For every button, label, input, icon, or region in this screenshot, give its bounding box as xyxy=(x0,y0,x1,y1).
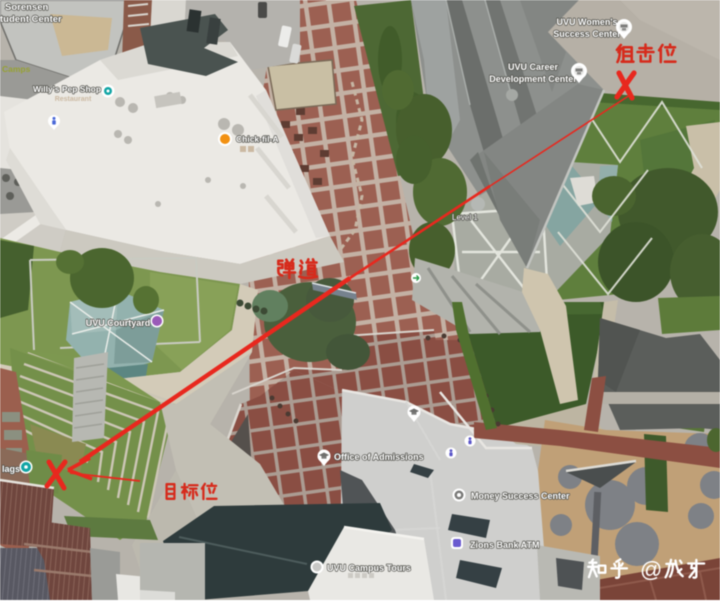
svg-text:UVU Courtyard: UVU Courtyard xyxy=(86,318,151,328)
svg-text:Chick-fil-A: Chick-fil-A xyxy=(236,134,279,144)
svg-text:Level 1: Level 1 xyxy=(452,213,478,222)
svg-text:UVU Career: UVU Career xyxy=(508,62,559,72)
svg-text:tudent Center: tudent Center xyxy=(0,14,62,25)
svg-text:Restaurant: Restaurant xyxy=(55,96,92,103)
svg-text:Camps: Camps xyxy=(2,64,31,74)
svg-text:UVU Campus Tours: UVU Campus Tours xyxy=(327,563,411,573)
svg-text:Sorensen: Sorensen xyxy=(5,2,48,13)
svg-text:Development Center: Development Center xyxy=(489,74,577,84)
svg-text:lags: lags xyxy=(2,464,20,474)
svg-text:@: @ xyxy=(640,557,662,582)
svg-text:Success Center: Success Center xyxy=(553,29,621,39)
svg-text:Office of Admissions: Office of Admissions xyxy=(334,452,424,462)
svg-text:UVU Women's: UVU Women's xyxy=(557,17,618,27)
svg-text:Willy's Pep Shop: Willy's Pep Shop xyxy=(33,84,101,94)
svg-text:Money Success Center: Money Success Center xyxy=(471,491,570,501)
svg-text:Zions Bank ATM: Zions Bank ATM xyxy=(470,540,540,550)
